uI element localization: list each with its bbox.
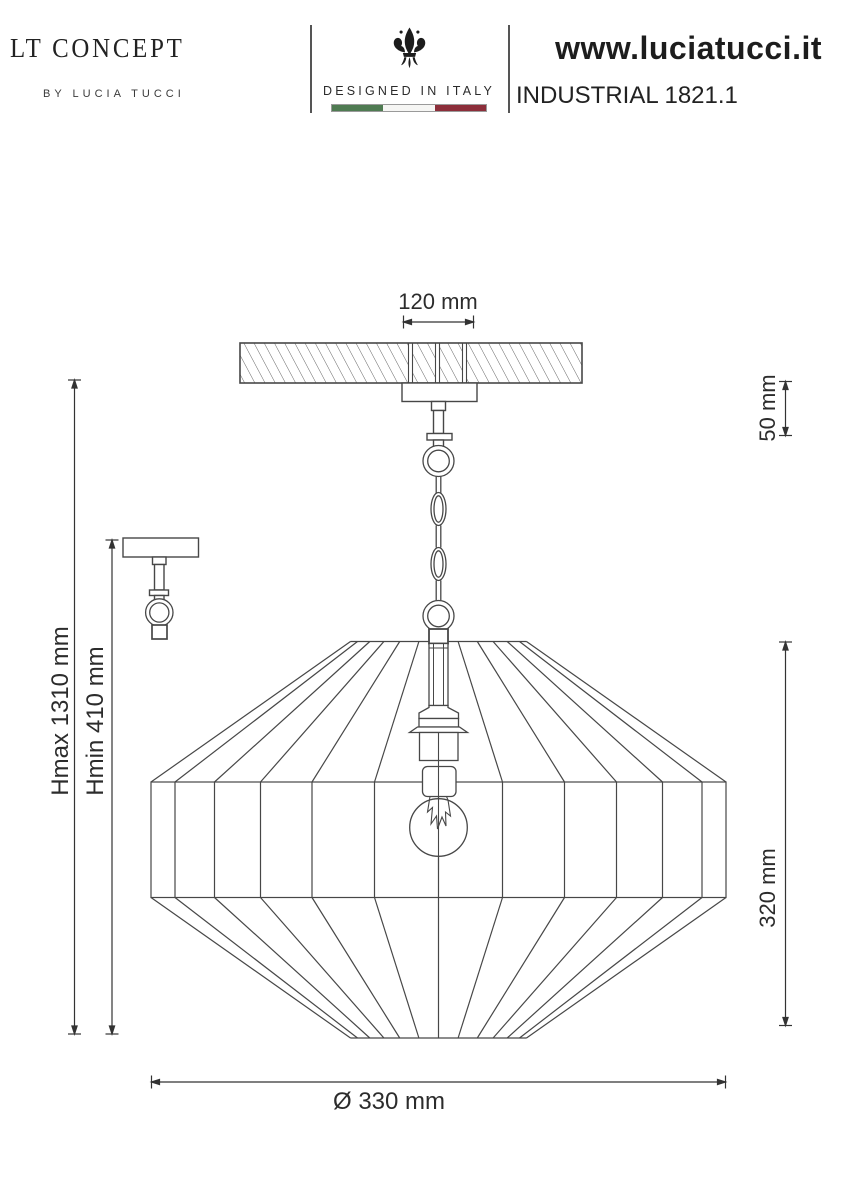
dim-label-canopy-width: 120 mm xyxy=(398,289,477,315)
dim-label-height-min: Hmin 410 mm xyxy=(82,646,110,795)
dim-label-shade-height: 320 mm xyxy=(755,848,781,927)
dim-line-shade-height xyxy=(779,642,792,1026)
spec-sheet-page: LT CONCEPT BY LUCIA TUCCI DESIGNED IN IT… xyxy=(0,0,849,1200)
socket-and-bulb xyxy=(410,629,468,870)
dim-line-canopy-width xyxy=(404,316,474,329)
technical-drawing xyxy=(0,0,849,1200)
dim-label-height-max: Hmax 1310 mm xyxy=(47,626,75,795)
canopy-and-chain xyxy=(402,383,477,632)
short-mount-variant xyxy=(123,538,199,639)
dim-line-shade-diameter xyxy=(152,1076,726,1089)
ceiling-section xyxy=(240,343,582,383)
dim-label-ceiling-offset: 50 mm xyxy=(755,374,781,441)
dim-label-shade-diameter: Ø 330 mm xyxy=(333,1088,445,1116)
